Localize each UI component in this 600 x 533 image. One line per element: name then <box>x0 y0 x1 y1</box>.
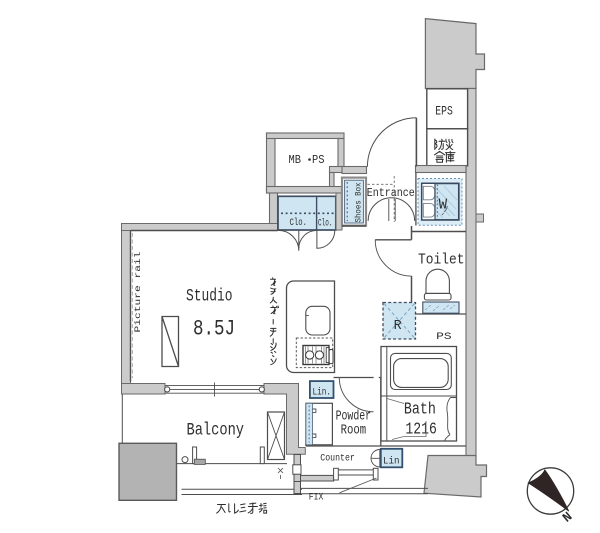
svg-text:R: R <box>394 319 402 334</box>
svg-text:Lin: Lin <box>383 456 400 468</box>
svg-text:Room: Room <box>341 424 367 439</box>
svg-text:Clo.: Clo. <box>318 218 333 230</box>
svg-text:FIX: FIX <box>309 492 324 504</box>
svg-text:1216: 1216 <box>405 420 437 439</box>
svg-text:Clo.: Clo. <box>290 217 308 229</box>
svg-text:8.5J: 8.5J <box>193 317 235 342</box>
svg-text:Studio: Studio <box>186 287 233 307</box>
svg-text:PS: PS <box>436 332 452 343</box>
svg-text:W: W <box>439 198 448 214</box>
svg-text:Toilet: Toilet <box>418 253 465 269</box>
svg-text:MB: MB <box>289 154 302 167</box>
svg-text:Lin.: Lin. <box>313 387 332 399</box>
svg-text:Balcony: Balcony <box>187 421 245 441</box>
svg-text:Picture rail: Picture rail <box>133 252 143 333</box>
svg-text:Shoes Box: Shoes Box <box>356 182 364 222</box>
svg-text:EPS: EPS <box>435 104 453 119</box>
svg-text:Bath: Bath <box>404 399 436 418</box>
svg-text:Counter: Counter <box>320 452 355 464</box>
svg-text:Powder: Powder <box>336 408 372 424</box>
svg-text:PS: PS <box>312 154 325 167</box>
